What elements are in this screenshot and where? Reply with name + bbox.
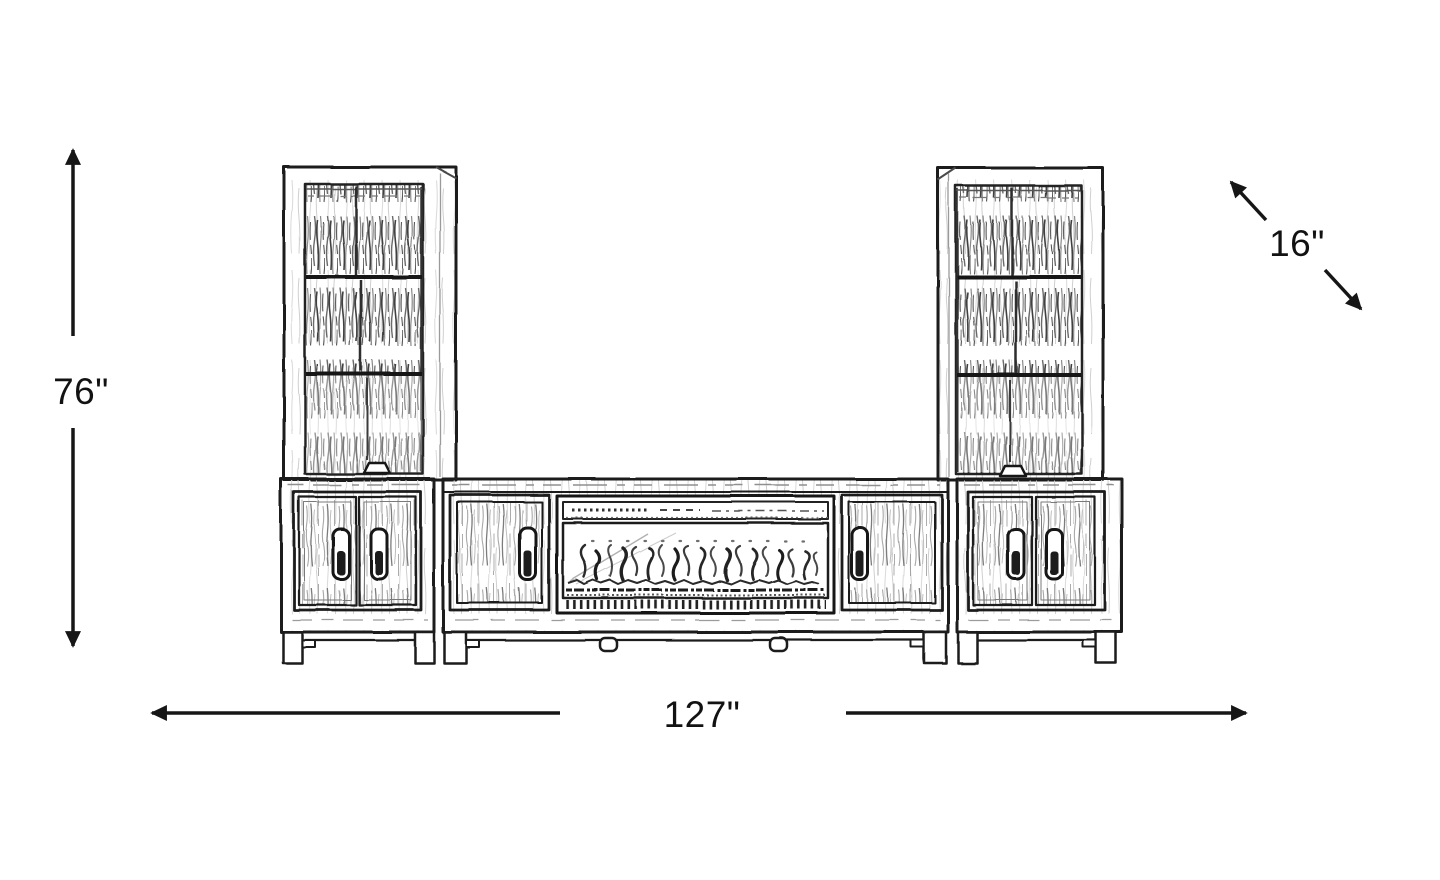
console-center-glide: [770, 638, 787, 651]
depth-dimension: 16": [1231, 182, 1361, 309]
furniture-dimension-diagram: 76" 127" 16": [0, 0, 1440, 880]
dimension-diagram-page: 76" 127" 16": [0, 0, 1440, 880]
fireplace-insert: [557, 496, 834, 613]
base-legs: [283, 632, 1116, 663]
console-center-glide: [600, 638, 617, 651]
depth-arrow-downright: [1325, 270, 1361, 309]
left-base-cabinet: [281, 479, 434, 632]
fireplace-vent: [566, 600, 826, 611]
door-handle: [1008, 529, 1024, 579]
depth-arrow-upleft: [1231, 182, 1266, 220]
right-pier-bookcase: [938, 168, 1103, 480]
left-pier-bookcase: [284, 167, 456, 480]
right-base-cabinet: [957, 479, 1122, 632]
console-right-door: [842, 495, 942, 610]
console-left-door: [450, 495, 549, 610]
furniture-drawing: [281, 167, 1122, 663]
height-label: 76": [53, 371, 109, 412]
width-label: 127": [664, 694, 741, 735]
right-pier-door-pull: [1000, 466, 1026, 476]
width-dimension: 127": [152, 694, 1246, 735]
left-pier-door-pull: [364, 463, 390, 473]
media-console: [443, 479, 948, 632]
depth-label: 16": [1269, 223, 1325, 264]
height-dimension: 76": [53, 150, 109, 646]
door-handle: [1046, 529, 1062, 579]
door-handle: [371, 529, 387, 579]
door-handle: [333, 529, 349, 579]
